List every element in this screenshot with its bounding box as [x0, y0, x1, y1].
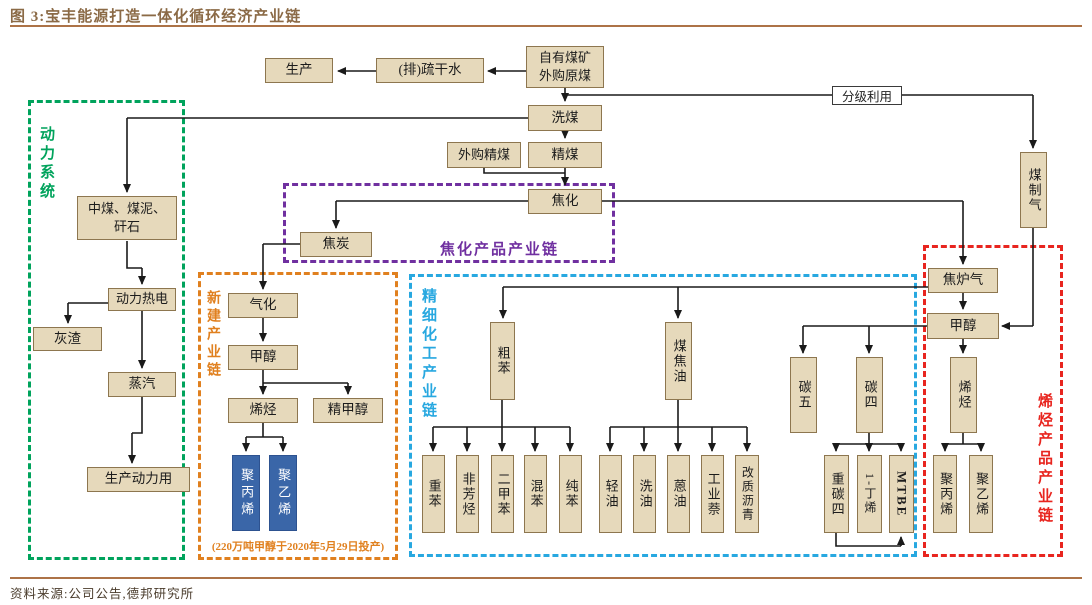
node-pp-new: 聚丙烯: [232, 455, 260, 531]
group-new-chain-label: 新建产业链: [202, 290, 222, 380]
node-crude-benzene: 粗苯: [490, 322, 515, 400]
node-industrial-naphthalene: 工业萘: [701, 455, 724, 533]
node-mixed-benzene: 混苯: [524, 455, 547, 533]
node-heavy-c4: 重碳四: [824, 455, 849, 533]
figure-source: 资料来源:公司公告,德邦研究所: [10, 583, 194, 602]
node-coal-washing: 洗煤: [528, 105, 602, 131]
figure-canvas: 图 3:宝丰能源打造一体化循环经济产业链: [0, 0, 1092, 605]
node-xylene: 二甲苯: [491, 455, 514, 533]
node-coal-to-gas: 煤制气: [1020, 152, 1047, 228]
node-ash: 灰渣: [33, 327, 102, 351]
node-methanol-new: 甲醇: [228, 345, 298, 370]
node-heavy-benzene: 重苯: [422, 455, 445, 533]
node-production: 生产: [265, 58, 333, 83]
node-drain-water: (排)疏干水: [376, 58, 484, 83]
node-refined-methanol: 精甲醇: [313, 398, 383, 423]
node-non-aromatics: 非芳烃: [456, 455, 479, 533]
node-production-power: 生产动力用: [87, 467, 190, 492]
node-pp-olefin: 聚丙烯: [933, 455, 957, 533]
node-methanol-olefin: 甲醇: [927, 313, 999, 339]
footer-rule: [10, 577, 1082, 579]
node-steam: 蒸汽: [108, 372, 176, 397]
node-pe-new: 聚乙烯: [269, 455, 297, 531]
node-mtbe: MTBE: [889, 455, 914, 533]
group-power-system-label: 动力系统: [36, 126, 57, 202]
node-raw-coal: 自有煤矿外购原煤: [526, 46, 604, 88]
group-olefin-products-label: 烯烃产品产业链: [1034, 393, 1055, 526]
node-olefin-new: 烯烃: [228, 398, 298, 423]
node-modified-pitch: 改质沥青: [735, 455, 759, 533]
node-c5: 碳五: [790, 357, 817, 433]
node-butene-1: 1-丁烯: [857, 455, 882, 533]
node-purchased-clean-coal: 外购精煤: [447, 142, 521, 168]
node-pe-olefin: 聚乙烯: [969, 455, 993, 533]
node-pure-benzene: 纯苯: [559, 455, 582, 533]
node-power-heat: 动力热电: [108, 288, 176, 311]
group-coking-products-label: 焦化产品产业链: [440, 238, 559, 259]
node-anthracene-oil: 蒽油: [667, 455, 690, 533]
group-fine-chemical-label: 精细化工产业链: [418, 288, 439, 421]
new-chain-note: (220万吨甲醇于2020年5月29日投产): [200, 538, 396, 554]
node-coal-tar: 煤焦油: [665, 322, 692, 400]
node-olefin-chain: 烯烃: [950, 357, 977, 433]
node-clean-coal: 精煤: [528, 142, 602, 168]
node-middlings: 中煤、煤泥、矸石: [77, 196, 177, 240]
node-c4: 碳四: [856, 357, 883, 433]
node-graded-use: 分级利用: [832, 86, 902, 105]
node-gasification: 气化: [228, 293, 298, 318]
node-coking: 焦化: [528, 189, 602, 214]
node-coke: 焦炭: [300, 232, 372, 257]
node-light-oil: 轻油: [599, 455, 622, 533]
node-wash-oil: 洗油: [633, 455, 656, 533]
node-coke-oven-gas: 焦炉气: [928, 268, 998, 293]
